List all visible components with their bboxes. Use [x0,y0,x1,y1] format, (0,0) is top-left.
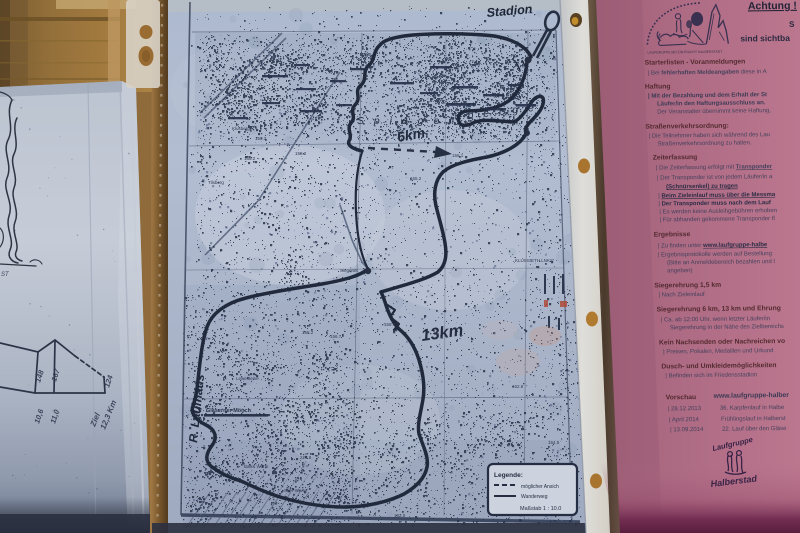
svg-text:Straßenverkehrsordnung:: Straßenverkehrsordnung: [645,123,729,131]
svg-text:S p i e g e l: S p i e g e l [357,115,455,127]
svg-text:156.1: 156.1 [452,153,464,158]
svg-text:Tilsberg: Tilsberg [208,180,224,185]
svg-text:www.laufgruppe-halber: www.laufgruppe-halber [713,392,790,400]
svg-text:Gläserner Mönch: Gläserner Mönch [206,408,252,414]
svg-text:Siegerehrung 1,5 km: Siegerehrung 1,5 km [654,282,721,290]
svg-text:| Befinden sich im Friedenss: | Befinden sich im Friedensstadion [665,372,757,379]
svg-text:Ergebnisse: Ergebnisse [654,231,691,238]
svg-text:S: S [789,20,795,29]
svg-text:Maßstab 1 : 10.0: Maßstab 1 : 10.0 [520,506,561,512]
svg-text:Haftung: Haftung [645,83,671,90]
svg-text:KLUSSIETH.LNKS: KLUSSIETH.LNKS [515,258,553,263]
svg-text:Stier-Warte: Stier-Warte [284,488,307,493]
svg-text:Straßenverkehrsordnung zu halt: Straßenverkehrsordnung zu halten. [658,140,752,147]
svg-text:162.0: 162.0 [394,513,406,518]
svg-text:Wanderweg: Wanderweg [521,494,548,500]
svg-text:158.2: 158.2 [295,151,307,156]
svg-text:Vorschau: Vorschau [666,394,697,401]
svg-text:Balkö Warte: Balkö Warte [244,464,269,469]
svg-text:165.2: 165.2 [410,176,422,181]
svg-text:Zeiterfassung: Zeiterfassung [653,154,698,162]
svg-text:sind sichtba: sind sichtba [740,33,790,44]
svg-text:möglicher Ansich: möglicher Ansich [521,484,559,490]
svg-text:137.5: 137.5 [360,52,372,57]
svg-text:164.5: 164.5 [548,440,560,445]
svg-text:angeben): angeben) [667,268,692,274]
svg-text:Legende:: Legende: [494,472,523,479]
svg-text:Achtung !: Achtung ! [748,0,797,12]
svg-text:| Nach Zieleinlauf: | Nach Zieleinlauf [658,292,705,299]
svg-text:Lewesteine: Lewesteine [236,376,259,381]
svg-text:Starterlisten - Voranmeldungen: Starterlisten - Voranmeldungen [645,58,746,66]
svg-text:Klusberge: Klusberge [232,126,253,131]
svg-text:158.2: 158.2 [302,330,314,335]
svg-text:ST: ST [1,272,10,278]
svg-text:158.4: 158.4 [384,322,396,327]
svg-text:Siegener: Siegener [340,268,359,273]
svg-text:156.7: 156.7 [330,334,342,339]
svg-text:224.8: 224.8 [300,455,312,460]
svg-text:159.3: 159.3 [255,136,267,141]
svg-text:Dusch- und Umkleidemöglichkeit: Dusch- und Umkleidemöglichkeiten [661,362,776,370]
svg-text:(Schnürsenkel) zu tragen: (Schnürsenkel) zu tragen [666,184,738,191]
svg-text:168.2: 168.2 [244,156,256,161]
svg-text:162.8: 162.8 [512,384,524,389]
